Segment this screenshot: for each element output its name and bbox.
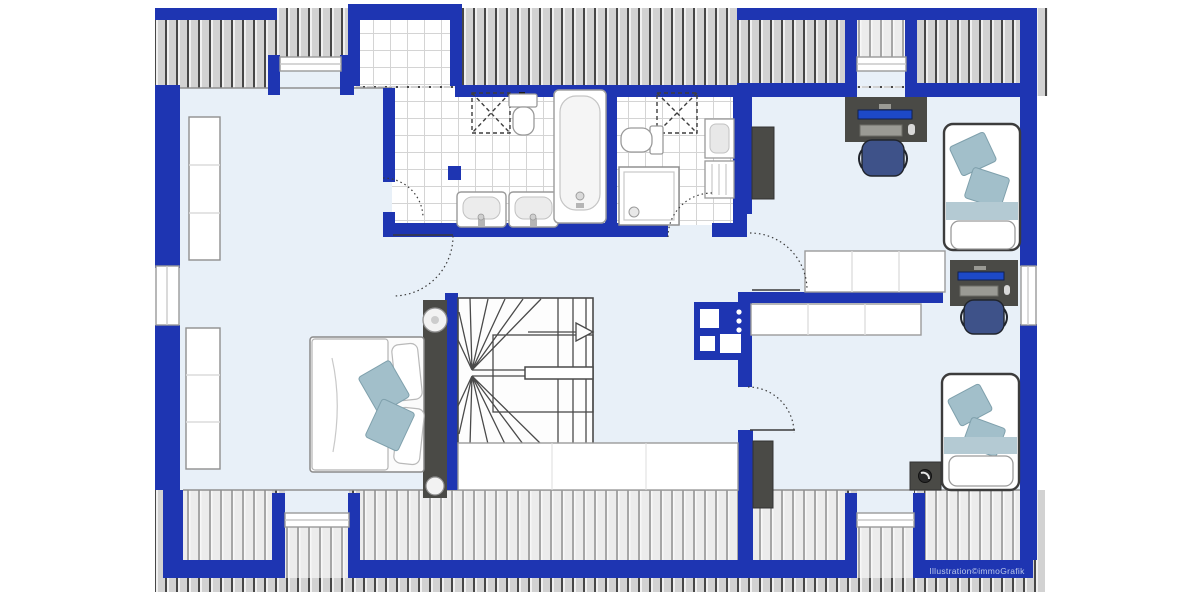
bathtub: [554, 90, 606, 223]
right-rooms-divider-wall: [738, 292, 943, 303]
tall-cabinet: [752, 127, 774, 199]
balustrade-cabinet: [458, 443, 738, 490]
knee-zone: [183, 490, 272, 560]
nightstand: [910, 462, 941, 490]
dormer-nook: [857, 71, 906, 86]
knee-zone: [925, 490, 1020, 560]
dormer-roof: [857, 527, 913, 578]
right-exterior-wall: [1020, 20, 1037, 266]
single-bed: [942, 374, 1019, 490]
office-chair: [961, 300, 1007, 334]
office-chair: [859, 140, 907, 176]
radiator: [705, 161, 734, 198]
wardrobe: [189, 117, 220, 260]
dormer-nook: [285, 488, 349, 514]
desk: [950, 260, 1018, 306]
wall-basin: [705, 119, 734, 158]
knee-wall: [360, 560, 845, 578]
toilet: [509, 94, 537, 135]
sideboard: [751, 304, 921, 335]
washbasin: [457, 192, 506, 227]
washbasin: [509, 192, 558, 227]
floorplan-page: Illustration©immoGrafik: [0, 0, 1200, 600]
single-bed: [944, 124, 1020, 250]
blanket-band: [944, 437, 1017, 454]
staircase: [458, 298, 593, 445]
dormer-roof: [857, 20, 905, 58]
bathroom-divider-wall: [605, 88, 617, 225]
left-exterior-wall: [155, 85, 180, 268]
desk: [845, 97, 927, 142]
dormer-nook: [280, 71, 341, 89]
blanket-band: [946, 202, 1018, 220]
shower: [619, 167, 679, 225]
lamp: [426, 477, 444, 495]
wardrobe: [186, 328, 220, 469]
roof-strip-right: [1037, 8, 1048, 96]
credit-text: Illustration©immoGrafik: [929, 566, 1025, 576]
floorplan-drawing: Illustration©immoGrafik: [0, 0, 1200, 600]
double-bed: [310, 337, 425, 472]
sideboard: [805, 251, 945, 292]
dormer-nook: [857, 488, 914, 514]
bathroom-dormer-tiles: [360, 20, 450, 86]
duvet-roll: [949, 456, 1013, 486]
stair-handrail: [525, 367, 593, 379]
knee-wall: [163, 560, 272, 578]
duvet-roll: [951, 221, 1015, 249]
dormer-roof: [285, 527, 348, 578]
pillar: [448, 166, 461, 180]
kitchenette-unit: [694, 302, 750, 360]
bathroom-west-wall: [383, 88, 395, 182]
tall-cabinet: [753, 441, 773, 508]
toilet: [621, 126, 663, 154]
